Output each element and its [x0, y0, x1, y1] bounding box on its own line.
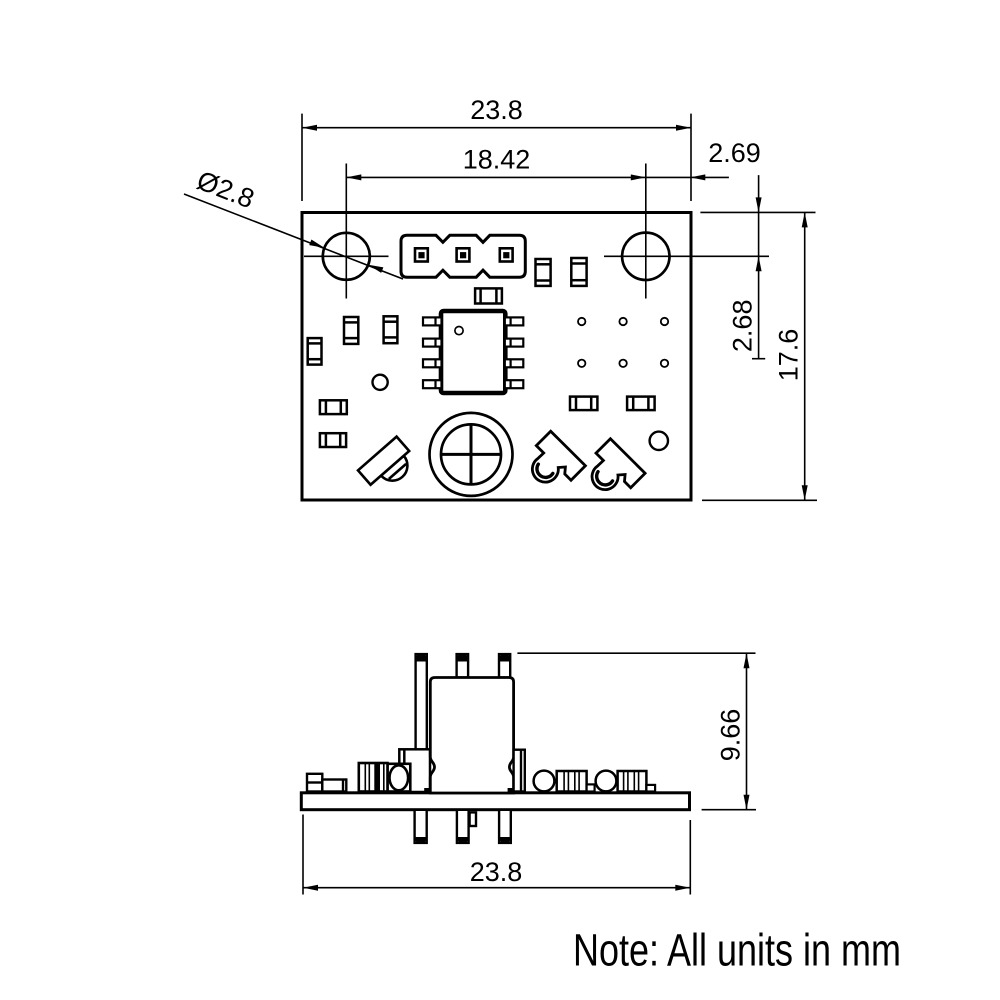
svg-text:9.66: 9.66 — [716, 709, 746, 762]
svg-text:2.68: 2.68 — [728, 300, 758, 353]
svg-text:2.69: 2.69 — [708, 138, 761, 168]
svg-text:23.8: 23.8 — [470, 95, 523, 125]
svg-text:23.8: 23.8 — [470, 857, 523, 887]
svg-text:18.42: 18.42 — [463, 145, 531, 175]
svg-text:17.6: 17.6 — [774, 329, 804, 382]
svg-text:Ø2.8: Ø2.8 — [193, 165, 258, 214]
svg-text:Note: All units in mm: Note: All units in mm — [573, 925, 901, 976]
